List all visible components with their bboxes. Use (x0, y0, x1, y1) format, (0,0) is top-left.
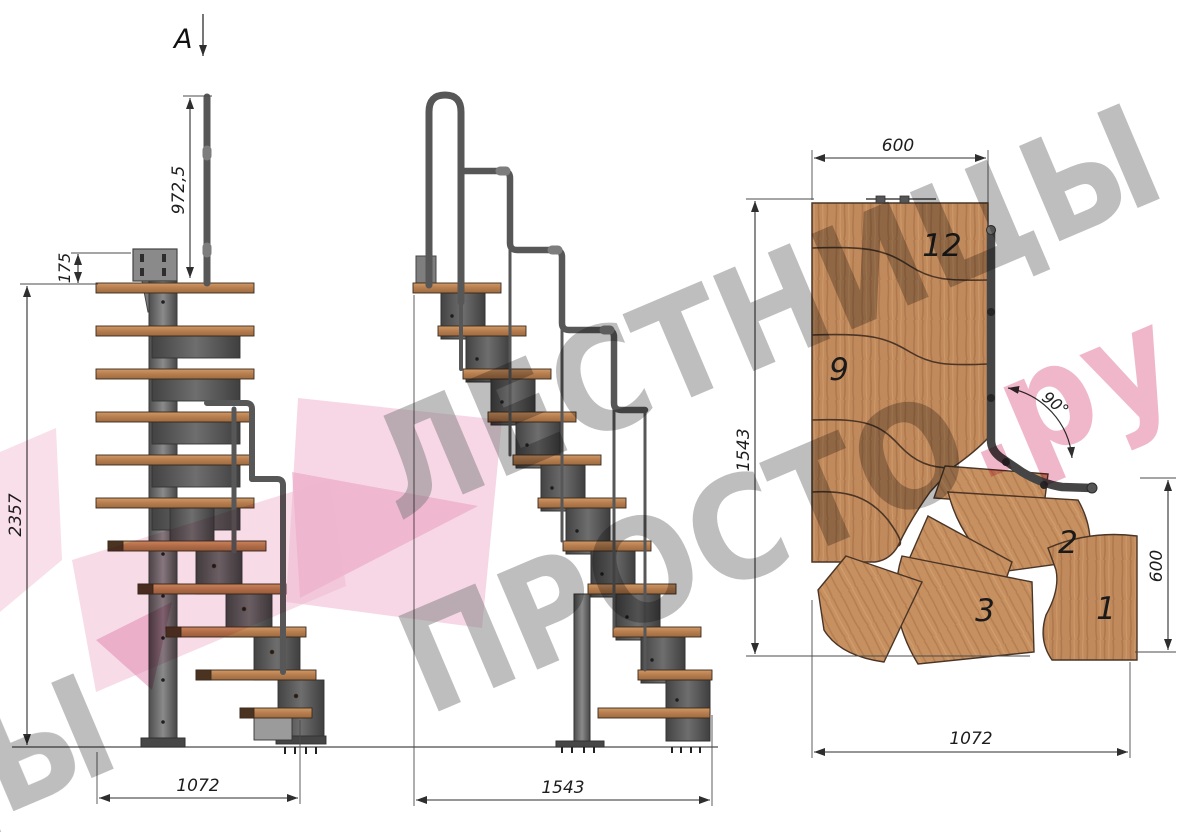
plan-step-number: 3 (975, 593, 995, 629)
plan-step-number: 1 (1096, 591, 1116, 627)
dim-label-rail-height: 972,5 (169, 166, 189, 215)
plan-step-number: 2 (1058, 525, 1078, 561)
dim-label-plan-right-depth: 600 (1147, 550, 1167, 582)
section-label: A (172, 24, 192, 55)
dim-label-plan-bottom-width: 1072 (949, 729, 992, 749)
technical-drawing-page: A (0, 0, 1200, 832)
dim-label-total-run: 1072 (176, 776, 219, 796)
dim-label-front-width: 1543 (541, 778, 584, 798)
dim-label-plate-height: 175 (55, 253, 74, 284)
dim-label-plan-top-width: 600 (882, 136, 914, 156)
